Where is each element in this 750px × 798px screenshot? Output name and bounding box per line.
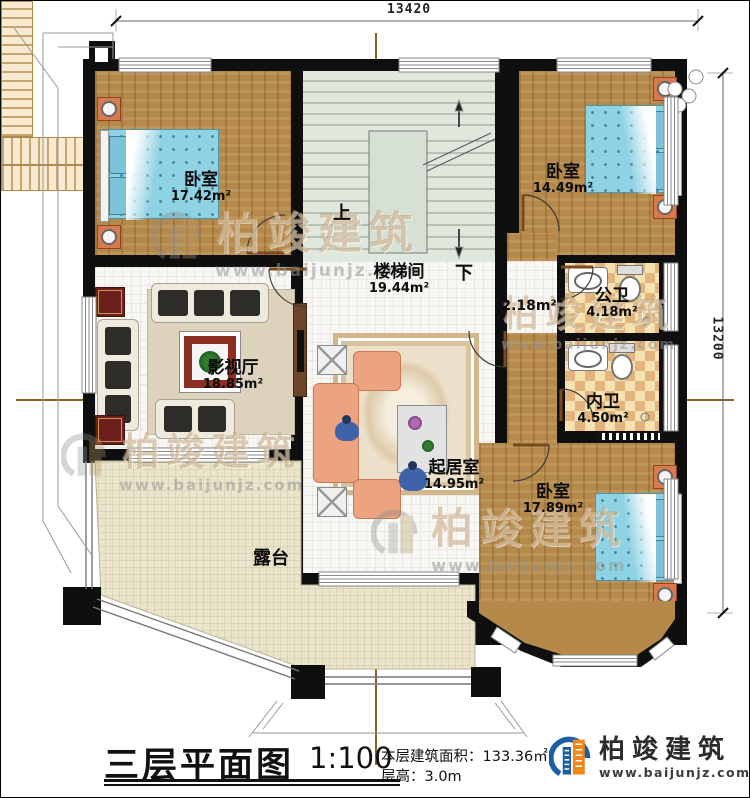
room-area: 18.85m² (203, 378, 263, 393)
title-underline (104, 779, 400, 786)
room-label-private-bath: 内卫 4.50m² (577, 393, 628, 427)
media-tv-cabinet (293, 303, 307, 397)
room-area: 17.42m² (171, 190, 231, 205)
bed-headboard (673, 494, 682, 584)
room-area: 4.18m² (586, 306, 637, 321)
bed-headboard (673, 106, 682, 196)
chimney-flue (95, 48, 108, 62)
nightstand (653, 195, 677, 219)
dimension-top: 13420 (387, 2, 431, 17)
bed-sheet-fold (622, 106, 656, 194)
person-figure (335, 421, 359, 441)
room-area: 14.49m² (533, 182, 593, 197)
room-name: 卧室 (523, 483, 583, 502)
bed-pillow (655, 499, 673, 537)
bed-sheet-fold (126, 130, 160, 220)
bed-pillow (655, 152, 673, 190)
living-armchair-top (353, 351, 401, 391)
nightstand (97, 225, 121, 249)
room-label-living: 起居室 14.95m² (424, 459, 484, 493)
nightstand (653, 77, 677, 101)
hall-floor-upper (507, 233, 557, 261)
living-side-table (317, 345, 347, 375)
floor-height-line: 层高：3.0m (381, 765, 462, 786)
floor-height-label: 层高： (381, 769, 425, 785)
terrace-column (471, 667, 501, 697)
room-label-corridor: 2.18m² (501, 299, 556, 315)
room-stairwell-floor (303, 71, 495, 261)
room-name: 公卫 (586, 287, 637, 306)
closet-bedroom-tl (1, 1, 33, 137)
room-area: 14.95m² (424, 478, 484, 493)
media-sofa-bottom (155, 399, 235, 439)
room-name: 内卫 (577, 393, 628, 412)
dimension-right: 13200 (710, 316, 725, 360)
bed-pillow (109, 136, 127, 174)
corridor-floor (507, 261, 557, 333)
stair-down-mark: 下 (455, 259, 473, 285)
room-name: 卧室 (171, 171, 231, 190)
living-armchair-bottom (353, 479, 401, 519)
room-name: 起居室 (424, 459, 484, 478)
living-side-table (317, 487, 347, 517)
nightstand (653, 583, 677, 607)
room-label-public-bath: 公卫 4.18m² (586, 287, 637, 321)
company-logo-url: www.baijunjz.com (599, 765, 750, 780)
room-label-bedroom-tl: 卧室 17.42m² (171, 171, 231, 205)
media-side-table (95, 287, 125, 317)
toilet-private-bath (609, 343, 635, 383)
nightstand (97, 97, 121, 121)
room-area: 4.50m² (577, 412, 628, 427)
bed-pillow (109, 177, 127, 215)
bed-bedroom-br (595, 493, 681, 581)
hall-floor-lower (507, 333, 557, 443)
company-logo-brand: 柏竣建筑 (599, 736, 750, 765)
room-name: 楼梯间 (369, 263, 429, 282)
floor-height-value: 3.0m (425, 769, 462, 785)
bed-pillow (655, 111, 673, 149)
watermark-url: www.baijunjz.com (119, 476, 304, 494)
bed-sheet-fold (624, 494, 656, 582)
company-logo-icon (549, 733, 593, 783)
media-side-table (95, 415, 125, 445)
bed-pillow (655, 540, 673, 578)
room-label-bedroom-br: 卧室 17.89m² (523, 483, 583, 517)
towel-radiator (597, 432, 661, 441)
room-label-bedroom-tr: 卧室 14.49m² (533, 163, 593, 197)
room-area: 2.18m² (501, 299, 556, 315)
room-name: 影视厅 (203, 359, 263, 378)
company-logo: 柏竣建筑 www.baijunjz.com (549, 733, 750, 783)
room-label-terrace: 露台 (253, 549, 289, 569)
media-sofa-top (151, 283, 269, 323)
sink-private-bath (568, 345, 608, 371)
floor-plan-sheet: 13420 13200 卧室 17.42m² 卧室 14.49m² 楼梯间 19… (0, 0, 750, 798)
nightstand (653, 465, 677, 489)
room-area: 17.89m² (523, 502, 583, 517)
room-name: 卧室 (533, 163, 593, 182)
floor-area-label: 本层建筑面积： (381, 749, 483, 765)
floor-area-line: 本层建筑面积：133.36㎡ (381, 745, 548, 766)
stair-up-mark: 上 (333, 199, 351, 225)
person-figure (399, 467, 427, 491)
terrace-column (63, 587, 101, 625)
terrace-column (291, 665, 325, 699)
bed-headboard (100, 130, 109, 222)
room-label-media: 影视厅 18.85m² (203, 359, 263, 393)
room-name: 露台 (253, 549, 289, 569)
room-area: 19.44m² (369, 282, 429, 297)
floor-area-value: 133.36㎡ (483, 749, 548, 765)
bed-bedroom-tr (585, 105, 681, 193)
room-label-stairwell: 楼梯间 19.44m² (369, 263, 429, 297)
